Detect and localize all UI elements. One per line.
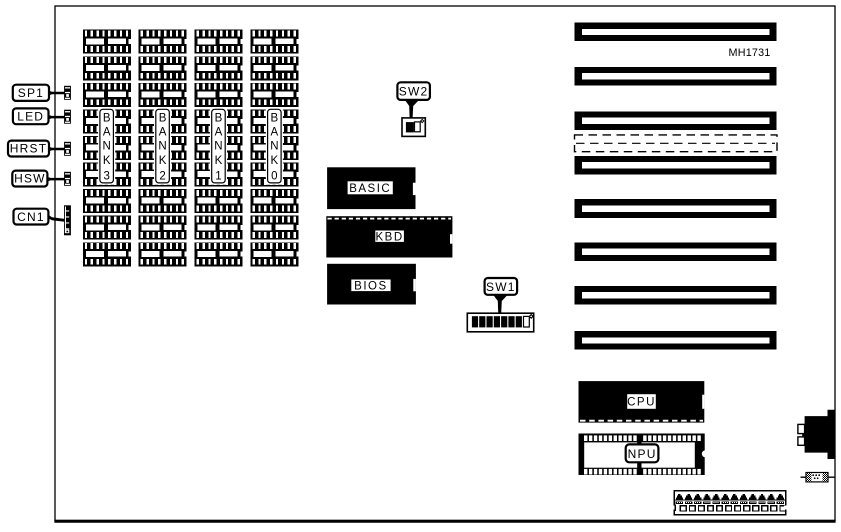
svg-text:K: K: [159, 155, 167, 167]
svg-text:CPU: CPU: [627, 397, 656, 409]
svg-text:K: K: [215, 155, 223, 167]
svg-text:B: B: [103, 113, 111, 125]
svg-text:SW1: SW1: [486, 280, 516, 294]
svg-text:N: N: [270, 141, 278, 153]
svg-text:HSW: HSW: [14, 172, 46, 186]
svg-text:K: K: [271, 155, 279, 167]
svg-text:2: 2: [159, 170, 165, 182]
svg-text:N: N: [102, 141, 110, 153]
svg-text:NPU: NPU: [628, 447, 657, 461]
svg-text:A: A: [215, 127, 223, 139]
svg-text:CN1: CN1: [17, 210, 45, 224]
svg-text:3: 3: [103, 170, 109, 182]
svg-text:1: 1: [215, 170, 221, 182]
svg-text:N: N: [158, 141, 166, 153]
svg-text:A: A: [103, 127, 111, 139]
svg-text:B: B: [215, 113, 223, 125]
svg-text:B: B: [271, 113, 279, 125]
svg-text:HRST: HRST: [10, 142, 47, 156]
svg-text:BIOS: BIOS: [354, 281, 387, 293]
svg-text:KBD: KBD: [376, 231, 404, 243]
svg-text:A: A: [271, 127, 279, 139]
svg-text:BASIC: BASIC: [349, 183, 391, 195]
svg-text:A: A: [159, 127, 167, 139]
svg-text:K: K: [103, 155, 111, 167]
svg-text:MH1731: MH1731: [729, 47, 771, 59]
svg-text:SP1: SP1: [18, 86, 44, 100]
svg-text:0: 0: [271, 170, 277, 182]
svg-text:N: N: [214, 141, 222, 153]
svg-text:SW2: SW2: [399, 85, 429, 99]
svg-text:LED: LED: [17, 110, 44, 124]
svg-text:B: B: [159, 113, 167, 125]
